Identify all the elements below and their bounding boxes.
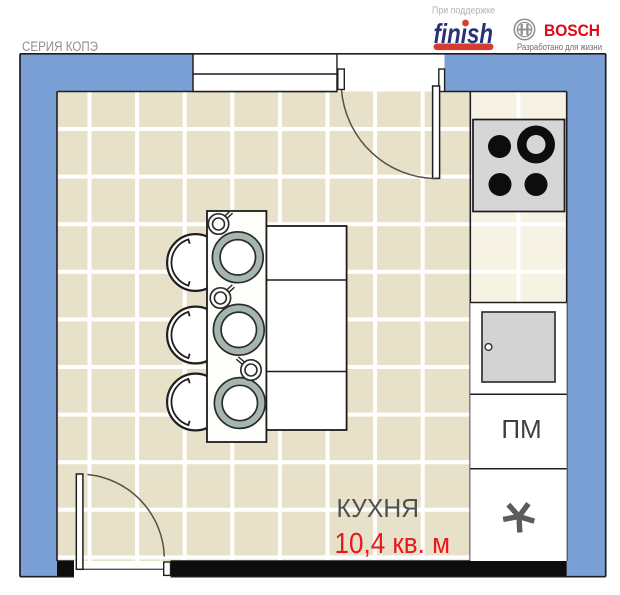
svg-text:BOSCH: BOSCH [544,22,600,40]
svg-text:Разработано для жизни: Разработано для жизни [517,42,602,52]
svg-text:При поддержке: При поддержке [432,6,495,17]
svg-text:СЕРИЯ КОПЭ: СЕРИЯ КОПЭ [22,39,98,54]
svg-text:10,4 кв. м: 10,4 кв. м [335,528,451,560]
svg-text:КУХНЯ: КУХНЯ [337,493,420,523]
svg-text:ПМ: ПМ [501,414,541,444]
